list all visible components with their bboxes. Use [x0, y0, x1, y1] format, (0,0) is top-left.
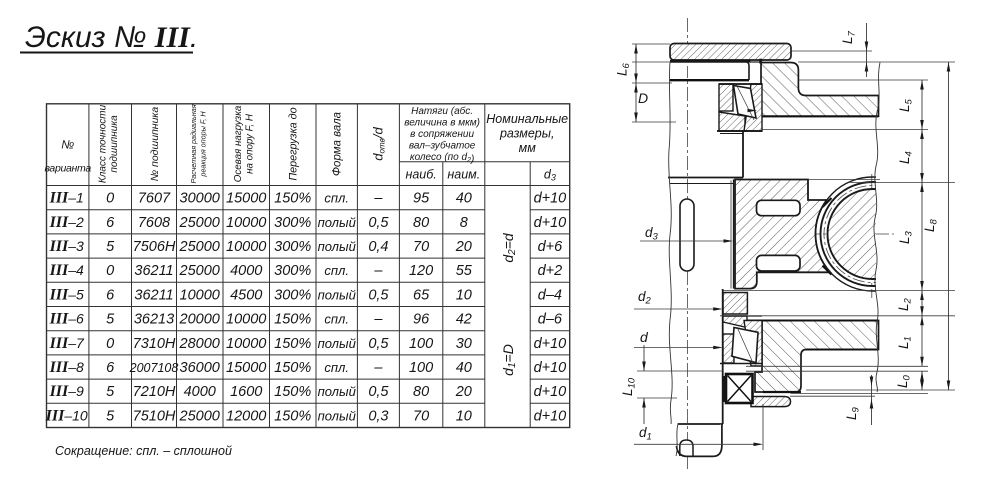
svg-text:0: 0: [106, 263, 114, 279]
svg-text:4000: 4000: [230, 263, 262, 279]
svg-text:№ подшипника: № подшипника: [149, 107, 161, 182]
svg-text:наим.: наим.: [447, 168, 480, 182]
svg-text:III–7: III–7: [49, 335, 85, 352]
svg-text:10000: 10000: [226, 239, 266, 255]
svg-text:d1=D: d1=D: [500, 344, 518, 376]
svg-text:спл.: спл.: [324, 263, 349, 278]
svg-text:5: 5: [106, 239, 115, 255]
svg-text:подшипника: подшипника: [109, 115, 120, 173]
svg-text:70: 70: [413, 239, 429, 255]
svg-text:36211: 36211: [134, 263, 173, 279]
svg-text:100: 100: [409, 336, 433, 352]
svg-text:150%: 150%: [274, 360, 311, 376]
svg-text:10000: 10000: [226, 336, 266, 352]
svg-text:0,5: 0,5: [368, 384, 389, 400]
svg-text:0,4: 0,4: [368, 239, 388, 255]
svg-text:5: 5: [106, 408, 115, 424]
svg-text:10000: 10000: [226, 215, 266, 231]
svg-text:III–8: III–8: [49, 359, 84, 376]
svg-text:–: –: [373, 312, 383, 328]
svg-text:L10: L10: [620, 377, 638, 396]
svg-text:15000: 15000: [226, 191, 266, 207]
svg-text:d+10: d+10: [534, 384, 567, 400]
svg-text:40: 40: [456, 191, 472, 207]
svg-text:L9: L9: [844, 406, 862, 420]
svg-text:D: D: [638, 90, 648, 106]
svg-text:4500: 4500: [230, 287, 262, 303]
svg-text:2007108: 2007108: [129, 361, 179, 375]
svg-text:Эскиз № III.: Эскиз № III.: [25, 21, 198, 54]
svg-text:30000: 30000: [180, 191, 220, 207]
svg-text:7506Н: 7506Н: [133, 239, 176, 255]
svg-text:300%: 300%: [274, 215, 311, 231]
svg-text:L0: L0: [895, 374, 913, 388]
svg-text:Осевая нагрузка: Осевая нагрузка: [233, 105, 244, 182]
svg-text:–: –: [373, 191, 383, 207]
svg-text:–: –: [373, 263, 383, 279]
svg-text:6: 6: [106, 215, 115, 231]
svg-text:спл.: спл.: [324, 191, 349, 206]
svg-text:7608: 7608: [138, 215, 170, 231]
svg-text:полый: полый: [318, 408, 356, 423]
svg-text:колесо (по d2): колесо (по d2): [410, 152, 474, 165]
svg-text:спл.: спл.: [324, 360, 349, 375]
svg-text:полый: полый: [318, 239, 356, 254]
svg-text:8: 8: [460, 215, 468, 231]
svg-text:15000: 15000: [226, 360, 266, 376]
svg-text:d: d: [640, 329, 649, 345]
svg-text:12000: 12000: [226, 408, 266, 424]
svg-text:100: 100: [409, 360, 433, 376]
svg-text:№: №: [61, 138, 74, 152]
svg-text:d+10: d+10: [534, 191, 567, 207]
svg-text:6: 6: [106, 287, 115, 303]
svg-text:10000: 10000: [226, 312, 266, 328]
svg-text:150%: 150%: [274, 384, 311, 400]
svg-text:36000: 36000: [180, 360, 220, 376]
svg-text:L8: L8: [922, 218, 940, 232]
svg-text:L3: L3: [897, 230, 915, 244]
svg-text:300%: 300%: [274, 287, 311, 303]
svg-text:III–9: III–9: [49, 383, 84, 400]
svg-text:28000: 28000: [179, 336, 220, 352]
svg-text:полый: полый: [318, 287, 356, 302]
svg-text:размеры,: размеры,: [499, 127, 554, 141]
svg-text:Перегрузка до: Перегрузка до: [288, 107, 300, 180]
svg-text:L4: L4: [897, 151, 915, 164]
svg-text:6: 6: [106, 360, 115, 376]
svg-text:реакция опоры F, Н: реакция опоры F, Н: [199, 111, 208, 178]
svg-text:0,3: 0,3: [368, 408, 388, 424]
svg-text:1600: 1600: [230, 384, 262, 400]
svg-text:20000: 20000: [179, 312, 220, 328]
svg-text:150%: 150%: [274, 312, 311, 328]
svg-text:150%: 150%: [274, 336, 311, 352]
svg-text:80: 80: [413, 384, 429, 400]
svg-text:спл.: спл.: [324, 312, 349, 327]
svg-text:III–10: III–10: [45, 407, 88, 424]
svg-text:d1: d1: [639, 425, 652, 443]
svg-text:95: 95: [413, 191, 430, 207]
svg-text:L1: L1: [896, 336, 914, 349]
svg-text:0,5: 0,5: [368, 336, 389, 352]
svg-text:Расчетная радиальная: Расчетная радиальная: [189, 104, 198, 183]
svg-text:36213: 36213: [134, 312, 174, 328]
svg-text:–: –: [373, 360, 383, 376]
svg-text:Класс точности: Класс точности: [98, 104, 109, 183]
svg-text:0: 0: [106, 336, 114, 352]
svg-text:Форма вала: Форма вала: [332, 112, 344, 176]
svg-text:25000: 25000: [179, 263, 220, 279]
svg-text:на опору F, Н: на опору F, Н: [245, 113, 256, 174]
svg-text:300%: 300%: [274, 239, 311, 255]
svg-text:25000: 25000: [179, 215, 220, 231]
svg-text:40: 40: [456, 360, 472, 376]
svg-text:d2=d: d2=d: [500, 232, 518, 263]
svg-text:вал–зубчатое: вал–зубчатое: [409, 140, 476, 152]
svg-text:20: 20: [455, 384, 472, 400]
svg-text:80: 80: [413, 215, 429, 231]
svg-text:dотв/d: dотв/d: [370, 127, 386, 161]
svg-text:мм: мм: [519, 141, 537, 155]
svg-text:d+6: d+6: [538, 239, 564, 255]
svg-text:d+10: d+10: [534, 215, 567, 231]
svg-text:25000: 25000: [179, 239, 220, 255]
svg-text:0: 0: [106, 191, 114, 207]
svg-text:варианта: варианта: [44, 163, 91, 175]
svg-text:300%: 300%: [274, 263, 311, 279]
svg-text:d+2: d+2: [538, 263, 563, 279]
svg-text:7607: 7607: [138, 191, 171, 207]
svg-text:96: 96: [413, 312, 430, 328]
svg-text:150%: 150%: [274, 408, 311, 424]
svg-text:10: 10: [456, 287, 472, 303]
svg-text:полый: полый: [318, 336, 356, 351]
svg-text:величина в мкм): величина в мкм): [404, 118, 480, 129]
svg-text:III–6: III–6: [49, 311, 84, 328]
svg-text:30: 30: [456, 336, 472, 352]
svg-text:d2: d2: [638, 289, 652, 307]
svg-text:65: 65: [413, 287, 430, 303]
svg-text:70: 70: [413, 408, 429, 424]
svg-text:полый: полый: [318, 215, 356, 230]
svg-text:10: 10: [456, 408, 472, 424]
svg-text:55: 55: [456, 263, 473, 279]
svg-text:5: 5: [106, 312, 115, 328]
svg-text:4000: 4000: [184, 384, 216, 400]
svg-text:150%: 150%: [274, 191, 311, 207]
svg-text:Номинальные: Номинальные: [486, 112, 568, 126]
svg-text:7510Н: 7510Н: [133, 408, 176, 424]
svg-text:L2: L2: [896, 297, 914, 311]
svg-text:0,5: 0,5: [368, 215, 389, 231]
svg-text:L6: L6: [615, 62, 633, 76]
svg-text:0,5: 0,5: [368, 287, 389, 303]
svg-text:Натяги (абс.: Натяги (абс.: [411, 105, 473, 117]
svg-text:d+10: d+10: [534, 336, 567, 352]
svg-text:III–1: III–1: [49, 190, 84, 207]
svg-text:L5: L5: [897, 98, 915, 112]
svg-text:d3: d3: [544, 168, 556, 183]
svg-text:120: 120: [409, 263, 433, 279]
svg-text:Сокращение: спл. – сплошной: Сокращение: спл. – сплошной: [55, 444, 232, 458]
svg-text:36211: 36211: [134, 287, 173, 303]
svg-text:в сопряжении: в сопряжении: [410, 129, 474, 140]
svg-text:d3: d3: [645, 225, 659, 243]
svg-text:25000: 25000: [179, 408, 220, 424]
svg-text:d–6: d–6: [538, 312, 563, 328]
svg-text:III–3: III–3: [49, 238, 84, 255]
svg-text:полый: полый: [318, 384, 356, 399]
svg-text:20: 20: [455, 239, 472, 255]
svg-text:L7: L7: [840, 30, 858, 44]
svg-text:7210Н: 7210Н: [133, 384, 176, 400]
svg-text:d+10: d+10: [534, 408, 567, 424]
svg-text:наиб.: наиб.: [405, 168, 436, 182]
svg-text:d+10: d+10: [534, 360, 567, 376]
svg-text:7310Н: 7310Н: [133, 336, 176, 352]
svg-text:d–4: d–4: [538, 287, 562, 303]
svg-text:III–5: III–5: [49, 286, 84, 303]
svg-text:42: 42: [456, 312, 472, 328]
svg-text:III–2: III–2: [49, 214, 84, 231]
svg-text:5: 5: [106, 384, 115, 400]
svg-text:III–4: III–4: [49, 262, 84, 279]
svg-text:10000: 10000: [180, 287, 220, 303]
